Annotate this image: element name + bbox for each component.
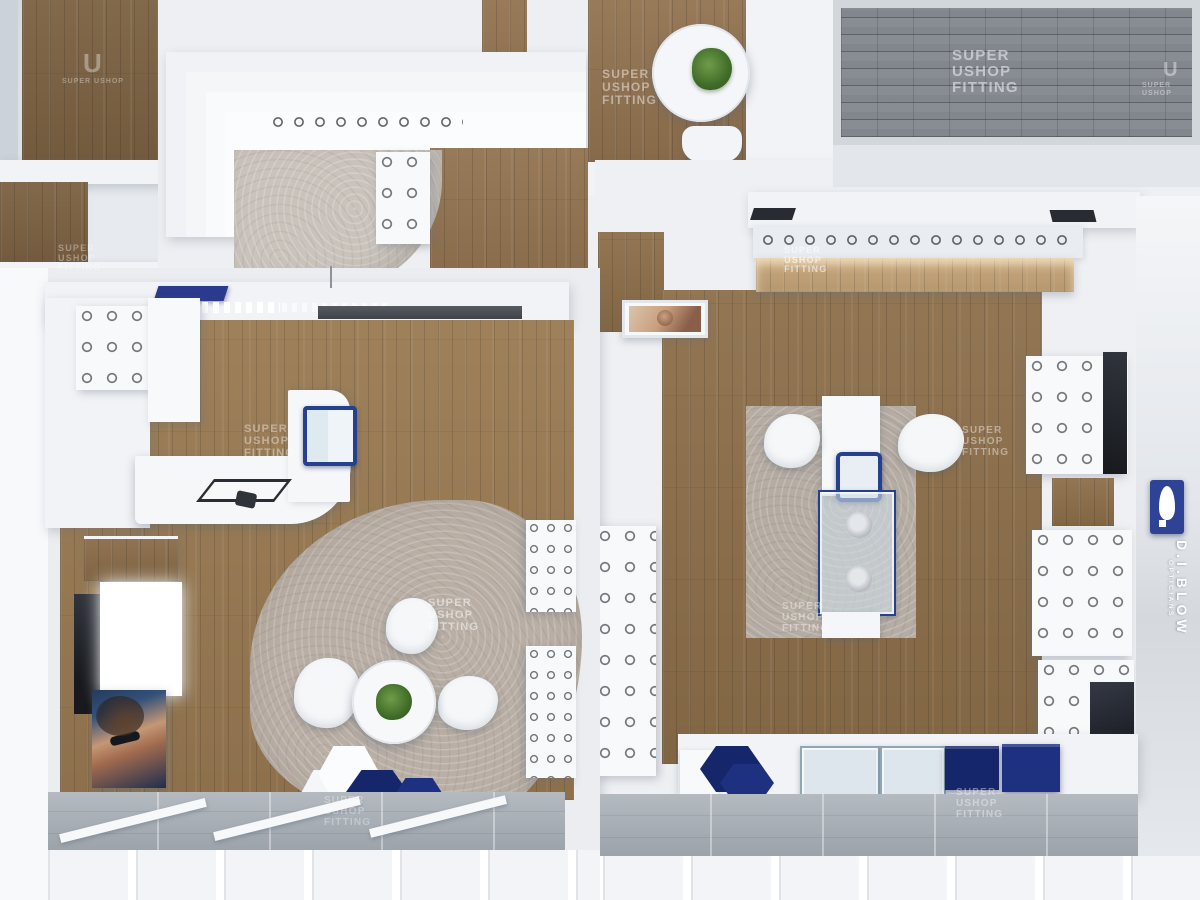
right-storefront-band: [595, 856, 1200, 900]
brand-logo-glyph: [1159, 486, 1175, 520]
top-left-room-floor: [22, 0, 162, 166]
island-console: [822, 612, 880, 638]
bottom-left-pillar: [0, 790, 48, 900]
dark-wall-strip: [318, 306, 522, 319]
left-storefront-band: [40, 850, 600, 900]
navy-display-box-2: [1002, 744, 1060, 792]
poster-hair-swirl: [96, 696, 144, 736]
wood-front-cabinet: [84, 536, 178, 581]
illuminated-eyewear-display: [100, 582, 182, 696]
glass-case-2: [880, 746, 946, 798]
right-entry-walkway: [598, 794, 1138, 860]
right-wall-cabinet-mid: [1032, 530, 1132, 656]
lit-wood-shelf-strip: [756, 258, 1074, 292]
eyewear-tower-lower: [526, 646, 576, 778]
tv-screen-right: [1050, 210, 1097, 222]
glass-case-1: [800, 746, 880, 800]
brand-logo-sign: [1150, 480, 1184, 534]
paving-lower-band: [833, 145, 1200, 187]
corridor-right-wall: [746, 0, 836, 164]
navy-display-box-1: [945, 746, 999, 790]
brand-logo-foot: [1159, 520, 1166, 527]
island-glass-display-case: [818, 490, 896, 616]
pendant-cable: [330, 266, 332, 288]
fitting-stool-1: [846, 512, 872, 538]
brand-vertical-sign: OPTICIANS D.I.BLOW: [1144, 540, 1190, 720]
eyewear-arm-display: [76, 306, 150, 390]
brand-name-vertical: D.I.BLOW: [1174, 540, 1190, 637]
fitting-stool-2: [846, 566, 872, 592]
counter-blue-display-frame: [303, 406, 357, 466]
eyewear-island-display: [376, 152, 430, 244]
white-cabinet-tower: [148, 298, 200, 422]
exterior-brick-paving: [833, 0, 1200, 145]
brand-tagline-vertical: OPTICIANS: [1167, 560, 1174, 618]
dark-poster-panel-upper: [1103, 352, 1127, 474]
tv-screen-left: [750, 208, 796, 220]
pillar-poster-frame: [622, 300, 708, 338]
poster-face: [657, 310, 673, 326]
side-room-floor: [0, 182, 88, 268]
floorplan-render: OPTICIANS D.I.BLOW: [0, 0, 1200, 900]
campaign-poster-woman: [92, 690, 166, 788]
eyewear-row-top-wall: [758, 232, 1078, 248]
eyewear-row-top-counter: [268, 114, 463, 130]
lounge-chair: [682, 126, 742, 162]
eyewear-tower-upper: [526, 520, 576, 612]
divider-eyewear-shelf: [594, 526, 656, 776]
pillar-poster-image: [629, 306, 701, 332]
right-wall-wood-inset: [1052, 478, 1114, 526]
